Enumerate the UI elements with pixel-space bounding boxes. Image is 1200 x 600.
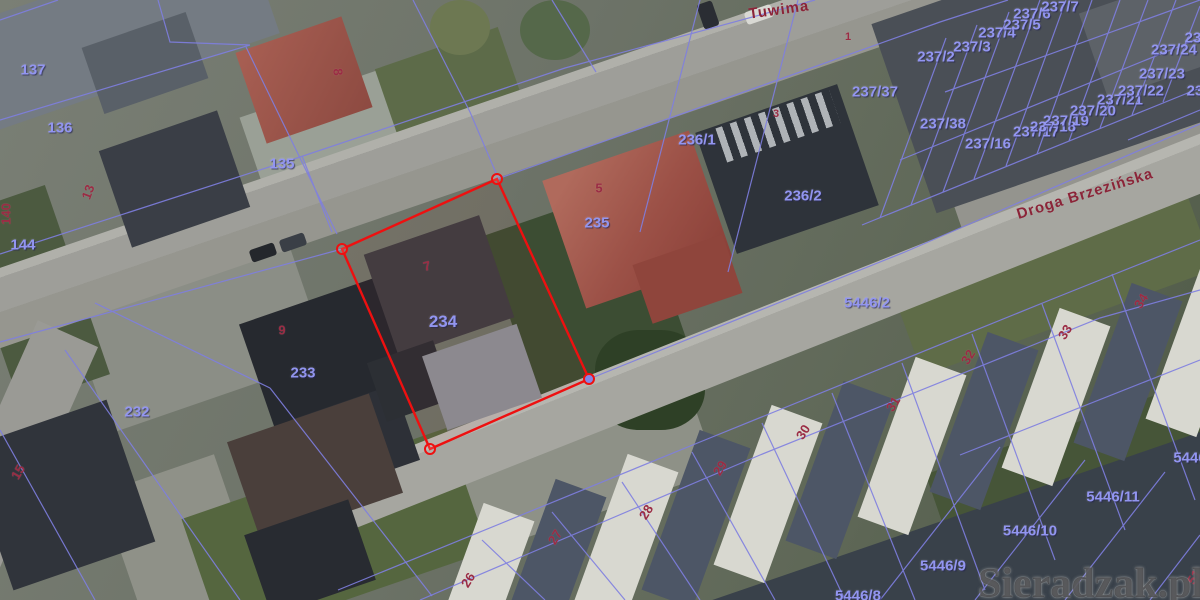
house-number-label: 31 xyxy=(883,394,903,414)
house-number-label: 30 xyxy=(793,422,813,442)
parcel-number-label: 237/23 xyxy=(1139,66,1185,83)
house-number-label: 33 xyxy=(1055,322,1075,342)
parcel-number-label: 237/7 xyxy=(1041,0,1079,16)
watermark: Sieradzak.pl xyxy=(978,560,1200,600)
street-name-label: Tuwima xyxy=(748,0,811,23)
parcel-number-label: 233 xyxy=(290,365,315,382)
parcel-number-label: 235 xyxy=(584,215,609,232)
house-number-label: 13 xyxy=(78,183,97,202)
house-number-label: 5 xyxy=(595,181,602,196)
house-number-label: 29 xyxy=(710,458,730,478)
house-number-label: 9 xyxy=(278,323,285,338)
house-number-label: 27 xyxy=(545,527,565,547)
house-number-label: 28 xyxy=(636,502,656,522)
parcel-number-label: 5446/2 xyxy=(844,295,890,312)
parcel-number-label: 5446/10 xyxy=(1003,523,1057,540)
house-number-label: 3 xyxy=(773,108,779,120)
parcel-number-label: 5446 xyxy=(1173,450,1200,467)
parcel-number-label: 237/38 xyxy=(920,116,966,133)
parcel-number-label: 232 xyxy=(124,404,149,421)
parcel-number-label: 136 xyxy=(47,120,72,137)
house-number-label: 15 xyxy=(8,462,28,482)
map-canvas[interactable]: 137136135144232233234235236/1236/2237/37… xyxy=(0,0,1200,600)
parcel-number-label: 237/37 xyxy=(852,84,898,101)
labels-layer: 137136135144232233234235236/1236/2237/37… xyxy=(0,0,1200,600)
house-number-label: 140 xyxy=(0,203,14,225)
parcel-number-label: 135 xyxy=(269,156,294,173)
house-number-label: 26 xyxy=(458,570,478,590)
parcel-number-label: 234 xyxy=(429,312,457,332)
parcel-number-label: 144 xyxy=(10,237,35,254)
parcel-number-label: 5446/11 xyxy=(1086,489,1139,506)
parcel-number-label: 237/22 xyxy=(1118,83,1164,100)
street-name-label: Droga Brzezińska xyxy=(1015,165,1156,223)
parcel-number-label: 236/2 xyxy=(784,188,822,205)
parcel-number-label: 23 xyxy=(1185,30,1200,47)
parcel-number-label: 5446/8 xyxy=(835,588,881,600)
parcel-number-label: 5446/9 xyxy=(920,558,966,575)
house-number-label: 7 xyxy=(422,258,433,274)
house-number-label: 8 xyxy=(330,68,346,77)
house-number-label: 32 xyxy=(958,347,978,367)
parcel-number-label: 237/2 xyxy=(917,49,955,66)
parcel-number-label: 236/1 xyxy=(678,132,716,149)
parcel-number-label: 237/16 xyxy=(965,136,1011,153)
house-number-label: 1 xyxy=(845,31,851,43)
house-number-label: 34 xyxy=(1131,291,1151,311)
parcel-number-label: 137 xyxy=(20,62,45,79)
parcel-number-label: 23 xyxy=(1187,83,1200,100)
